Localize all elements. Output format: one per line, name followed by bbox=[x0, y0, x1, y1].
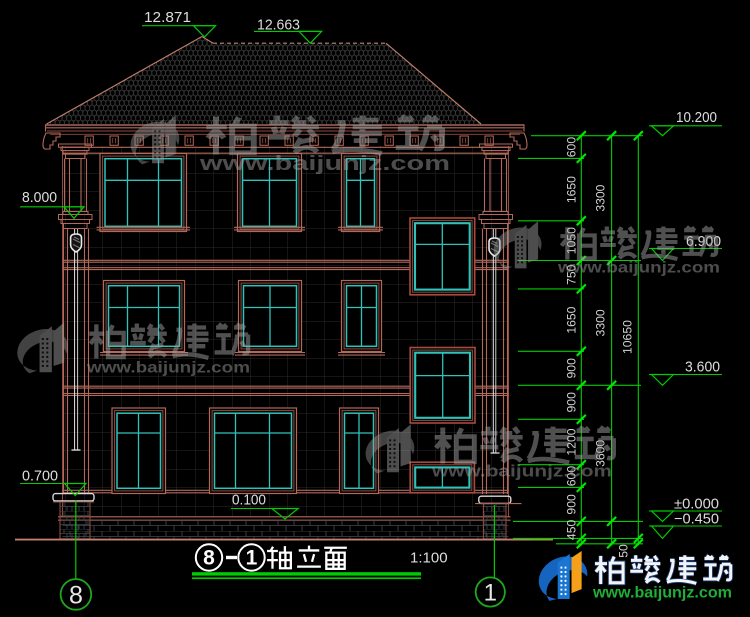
svg-text:12.871: 12.871 bbox=[144, 9, 191, 26]
svg-text:−0.450: −0.450 bbox=[674, 511, 719, 528]
svg-text:0.700: 0.700 bbox=[22, 468, 58, 485]
svg-text:8.000: 8.000 bbox=[22, 189, 57, 206]
svg-text:1650: 1650 bbox=[565, 306, 579, 333]
svg-text:1: 1 bbox=[484, 580, 497, 607]
svg-text:10650: 10650 bbox=[621, 320, 635, 354]
svg-text:3300: 3300 bbox=[594, 309, 608, 336]
svg-text:900: 900 bbox=[565, 494, 579, 515]
svg-text:1650: 1650 bbox=[565, 176, 579, 203]
svg-text:900: 900 bbox=[565, 358, 579, 379]
svg-text:600: 600 bbox=[565, 137, 579, 158]
svg-text:1: 1 bbox=[246, 547, 258, 570]
svg-text:www.baijunjz.com: www.baijunjz.com bbox=[199, 152, 450, 175]
svg-text:www.baijunjz.com: www.baijunjz.com bbox=[86, 360, 250, 377]
svg-text:10.200: 10.200 bbox=[676, 109, 717, 126]
svg-text:8: 8 bbox=[69, 581, 83, 609]
svg-text:8: 8 bbox=[203, 547, 215, 570]
svg-text:50: 50 bbox=[617, 544, 631, 558]
svg-text:450: 450 bbox=[565, 520, 579, 541]
svg-text:www.baijunjz.com: www.baijunjz.com bbox=[431, 462, 612, 481]
svg-text:www.baijunjz.com: www.baijunjz.com bbox=[557, 260, 720, 277]
svg-text:www.baijunjz.com: www.baijunjz.com bbox=[592, 585, 732, 602]
svg-text:3.600: 3.600 bbox=[685, 359, 720, 376]
svg-text:0.100: 0.100 bbox=[232, 492, 266, 509]
svg-text:3300: 3300 bbox=[594, 184, 608, 211]
svg-text:900: 900 bbox=[565, 392, 579, 413]
svg-text:1:100: 1:100 bbox=[410, 550, 448, 567]
